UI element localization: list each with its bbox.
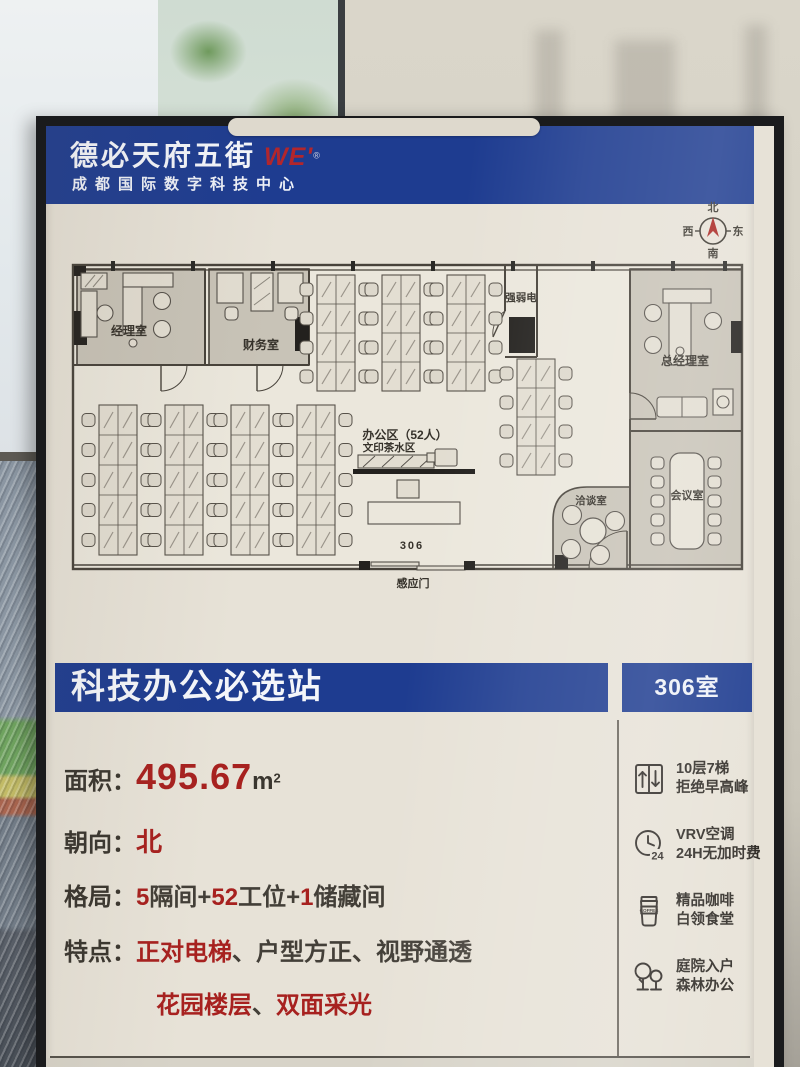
feature-seg: 正对电梯	[136, 939, 232, 966]
bottom-strip	[46, 1058, 754, 1067]
coffee-icon: COFFEE	[631, 893, 667, 929]
feature-seg: 双面采光	[276, 992, 372, 1019]
spec-features-line2: 花园楼层、双面采光	[156, 985, 609, 1020]
banner-room-tag: 306室	[622, 663, 752, 712]
room-number-label: 306	[400, 540, 424, 552]
amenity-line1: 庭院入户	[676, 958, 734, 977]
compass-east-label: 东	[733, 224, 744, 238]
layout-seg: 1	[300, 884, 313, 911]
layout-seg: 隔间+	[149, 884, 211, 911]
poster-subtitle: 成都国际数字科技中心	[72, 173, 302, 194]
compass: 北 南 西 东	[681, 198, 745, 262]
compass-south-label: 南	[708, 246, 719, 260]
layout-seg: 工位+	[238, 884, 300, 911]
compass-north-needle	[707, 217, 719, 237]
floor-plan: 经理室 财务室 强弱电 总经理室 办公区（52人） 文印茶水区 洽谈室 会议室 …	[65, 259, 750, 595]
brand-row: 德必天府五街WE'®	[70, 134, 320, 174]
brand-we-logo: WE'	[264, 143, 313, 171]
amenity-hvac: 24 VRV空调 24H无加时费	[631, 826, 749, 864]
sensor-door-label: 感应门	[397, 576, 430, 590]
amenity-garden: 庭院入户 森林办公	[631, 958, 749, 996]
features-label: 特点：	[64, 939, 136, 966]
banner-title: 科技办公必选站	[55, 663, 608, 712]
layout-label: 格局：	[64, 884, 136, 911]
brand-name: 德必天府五街	[70, 140, 256, 171]
amenity-line2: 白领食堂	[676, 911, 734, 930]
poster-header: 德必天府五街WE'® 成都国际数字科技中心	[46, 126, 754, 204]
amenity-line1: 10层7梯	[676, 760, 749, 779]
spec-features-line1: 特点：正对电梯、户型方正、视野通透	[64, 932, 609, 967]
amenity-coffee: COFFEE 精品咖啡 白领食堂	[631, 892, 749, 930]
clock-24-badge: 24	[651, 851, 664, 863]
manager-office-label: 经理室	[111, 323, 147, 338]
orientation-label: 朝向：	[64, 830, 136, 857]
room-tag-label: 306室	[654, 674, 719, 700]
feature-seg: 视野通透	[376, 939, 472, 966]
area-unit: m	[252, 768, 273, 795]
gm-office-label: 总经理室	[661, 353, 709, 368]
photo-scene: 德必天府五街WE'® 成都国际数字科技中心 北 南 西 东	[0, 0, 800, 1067]
feature-seg: 花园楼层	[156, 992, 252, 1019]
print-tea-label: 文印茶水区	[362, 441, 416, 454]
compass-north-label: 北	[708, 200, 719, 214]
spec-layout: 格局：5隔间+52工位+1储藏间	[64, 877, 609, 912]
banner-title-bar: 科技办公必选站	[55, 663, 608, 712]
amenity-line2: 森林办公	[676, 977, 734, 996]
layout-seg: 5	[136, 884, 149, 911]
amenity-elevator: 10层7梯 拒绝早高峰	[631, 760, 749, 798]
poster-board: 德必天府五街WE'® 成都国际数字科技中心 北 南 西 东	[36, 116, 784, 1067]
meeting-room-label: 会议室	[671, 488, 704, 502]
sliding-door-panel	[417, 566, 465, 570]
feature-seg: 户型方正	[256, 939, 352, 966]
electrical-closet-label: 强弱电	[505, 291, 537, 304]
amenity-line2: 24H无加时费	[676, 845, 761, 864]
amenities-list: 10层7梯 拒绝早高峰 24 VRV空调	[631, 760, 749, 996]
area-unit-sup: 2	[273, 771, 280, 786]
spec-orientation: 朝向：北	[64, 822, 609, 859]
column-divider	[617, 720, 619, 1056]
feature-seg: 、	[352, 939, 376, 966]
open-office-label: 办公区（52人）	[362, 427, 447, 442]
poster: 德必天府五街WE'® 成都国际数字科技中心 北 南 西 东	[46, 126, 754, 1067]
specs-section: 面积：495.67m2 朝向：北 格局：5隔间+52工位+1储藏间 特点：正对电…	[64, 756, 609, 1020]
poster-top-glare	[228, 118, 540, 136]
orientation-value: 北	[136, 827, 162, 857]
registered-mark: ®	[313, 151, 320, 161]
coffee-cup-text: COFFEE	[640, 908, 659, 913]
feature-seg: 、	[252, 992, 276, 1019]
negotiation-room-label: 洽谈室	[575, 494, 607, 507]
electrical-equipment	[509, 317, 535, 353]
layout-seg: 储藏间	[313, 884, 385, 911]
area-value: 495.67	[136, 756, 252, 797]
amenity-line1: VRV空调	[676, 826, 761, 845]
finance-office-label: 财务室	[242, 337, 279, 352]
amenity-line2: 拒绝早高峰	[676, 779, 749, 798]
spec-area: 面积：495.67m2	[64, 756, 609, 798]
printer	[435, 449, 457, 466]
elevator-icon	[631, 761, 667, 797]
sliding-door-panel	[371, 562, 419, 566]
compass-west-label: 西	[683, 225, 694, 238]
feature-seg: 、	[232, 939, 256, 966]
clock-24-icon: 24	[631, 827, 667, 863]
area-label: 面积：	[64, 768, 136, 795]
trees-icon	[631, 959, 667, 995]
layout-seg: 52	[211, 884, 238, 911]
amenity-line1: 精品咖啡	[676, 892, 734, 911]
